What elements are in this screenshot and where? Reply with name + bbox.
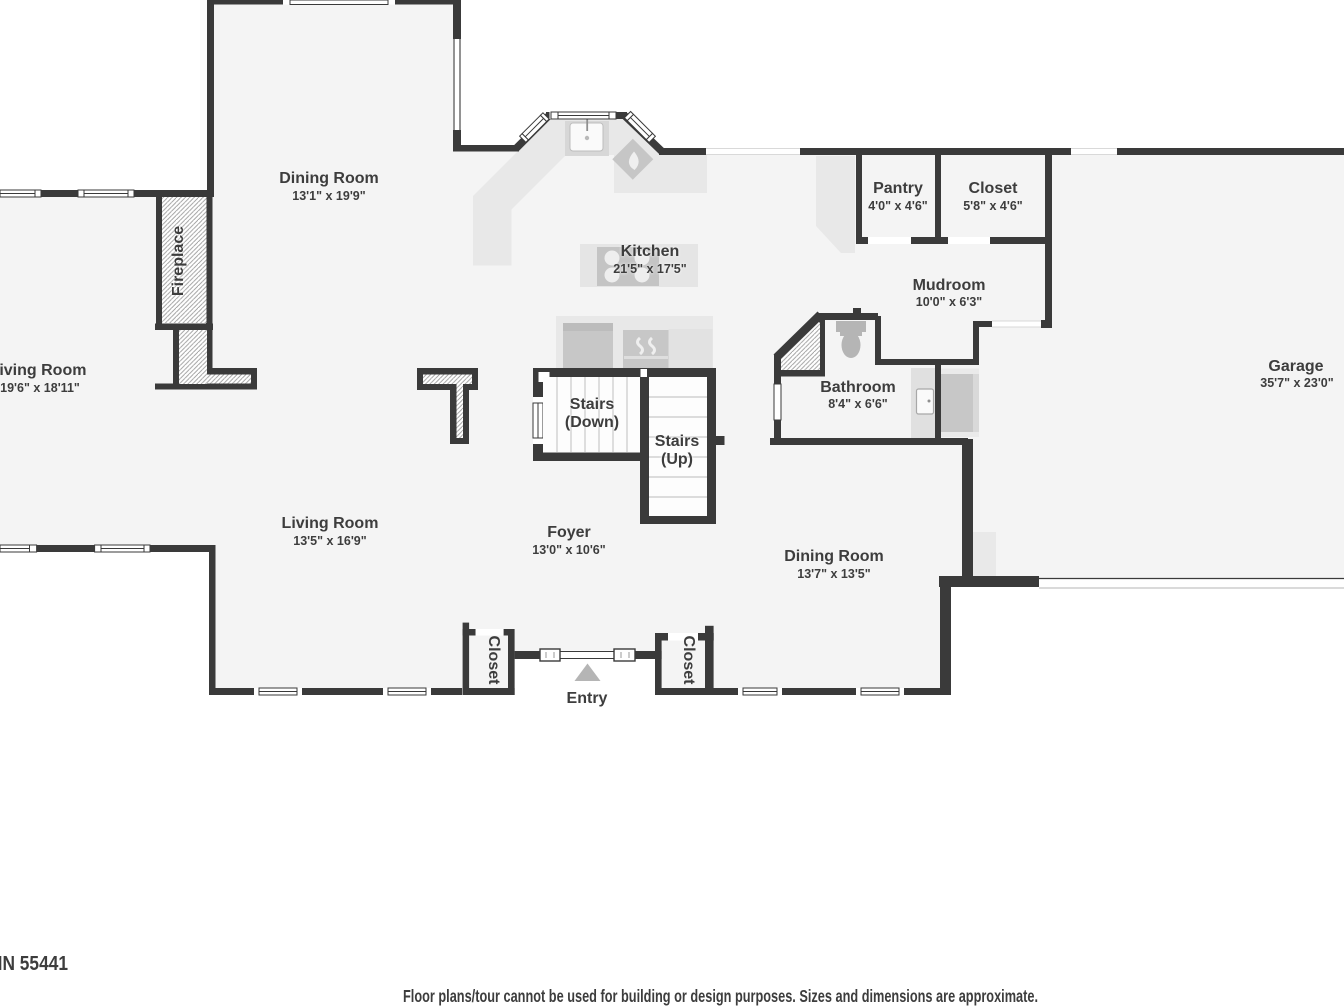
svg-text:(Up): (Up) (661, 451, 693, 468)
svg-text:Closet: Closet (969, 180, 1019, 197)
svg-text:Floor plans/tour cannot be use: Floor plans/tour cannot be used for buil… (403, 986, 1038, 1006)
svg-text:Living Room: Living Room (0, 362, 86, 379)
svg-text:8'4" x 6'6": 8'4" x 6'6" (828, 397, 888, 411)
svg-text:(Down): (Down) (565, 414, 619, 431)
svg-text:13'0" x 10'6": 13'0" x 10'6" (532, 543, 605, 557)
svg-text:MN 55441: MN 55441 (0, 952, 68, 975)
svg-text:21'5" x 17'5": 21'5" x 17'5" (613, 262, 686, 276)
svg-text:Foyer: Foyer (547, 524, 591, 541)
svg-text:Stairs: Stairs (655, 433, 700, 450)
svg-text:Mudroom: Mudroom (913, 277, 986, 294)
svg-text:Entry: Entry (567, 690, 608, 707)
svg-text:13'1" x 19'9": 13'1" x 19'9" (292, 189, 365, 203)
svg-text:10'0" x 6'3": 10'0" x 6'3" (916, 295, 983, 309)
svg-text:4'0" x 4'6": 4'0" x 4'6" (868, 199, 928, 213)
svg-text:19'6" x 18'11": 19'6" x 18'11" (0, 381, 80, 395)
svg-text:Kitchen: Kitchen (621, 243, 680, 260)
svg-text:Dining Room: Dining Room (784, 548, 884, 565)
svg-text:Fireplace: Fireplace (170, 226, 187, 296)
svg-text:Garage: Garage (1268, 358, 1323, 375)
svg-text:Living Room: Living Room (282, 515, 379, 532)
svg-text:5'8" x 4'6": 5'8" x 4'6" (963, 199, 1023, 213)
svg-text:Bathroom: Bathroom (820, 379, 896, 396)
svg-text:13'5" x 16'9": 13'5" x 16'9" (293, 534, 366, 548)
svg-text:Closet: Closet (485, 636, 502, 686)
svg-text:Closet: Closet (680, 636, 697, 686)
svg-text:Pantry: Pantry (873, 180, 923, 197)
svg-text:35'7" x 23'0": 35'7" x 23'0" (1260, 376, 1333, 390)
svg-text:Dining Room: Dining Room (279, 170, 379, 187)
svg-text:Stairs: Stairs (570, 396, 615, 413)
svg-text:13'7" x 13'5": 13'7" x 13'5" (797, 567, 870, 581)
